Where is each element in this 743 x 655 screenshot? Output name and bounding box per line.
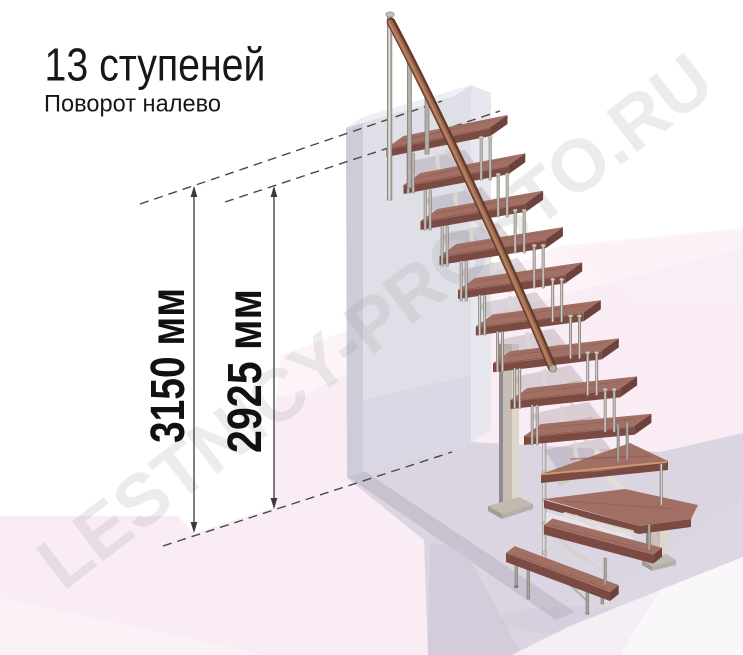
svg-text:13 ступеней: 13 ступеней — [45, 39, 266, 91]
svg-text:Поворот налево: Поворот налево — [44, 91, 221, 118]
svg-text:2925 мм: 2925 мм — [219, 289, 272, 453]
svg-text:3150 мм: 3150 мм — [142, 288, 195, 443]
